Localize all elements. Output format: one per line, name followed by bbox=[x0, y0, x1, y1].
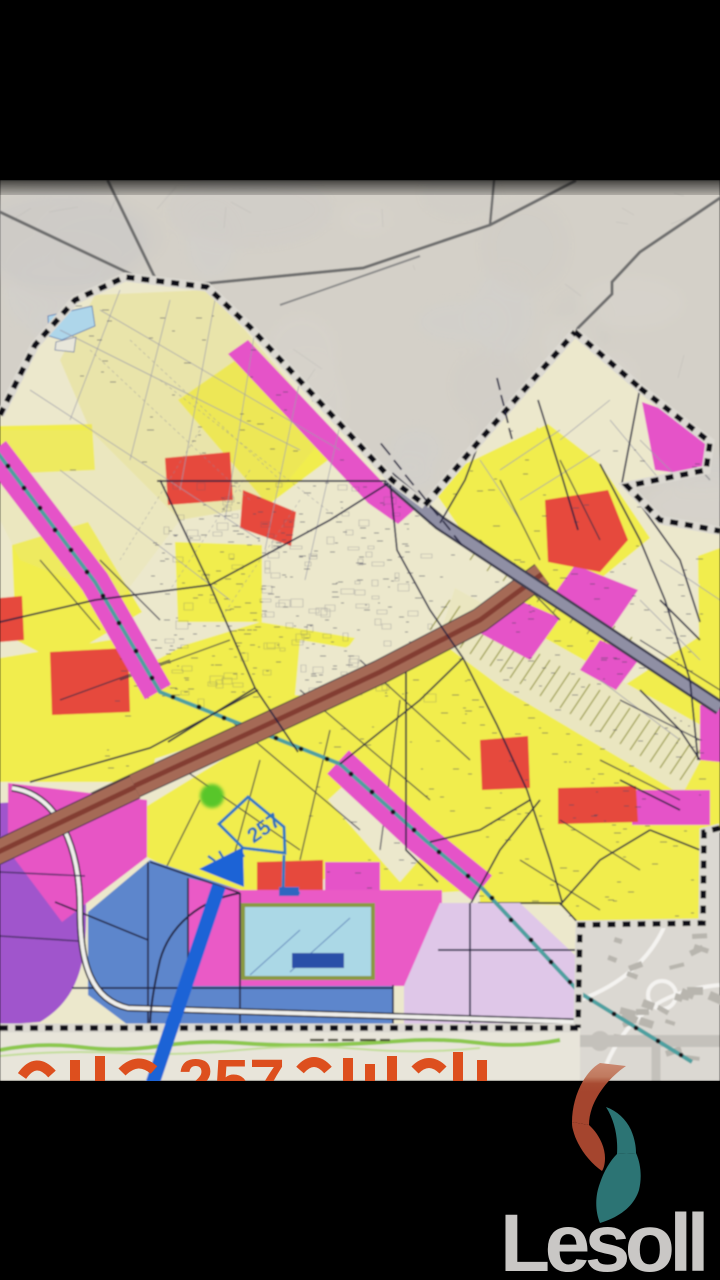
svg-text:Lesoll: Lesoll bbox=[500, 1198, 704, 1280]
